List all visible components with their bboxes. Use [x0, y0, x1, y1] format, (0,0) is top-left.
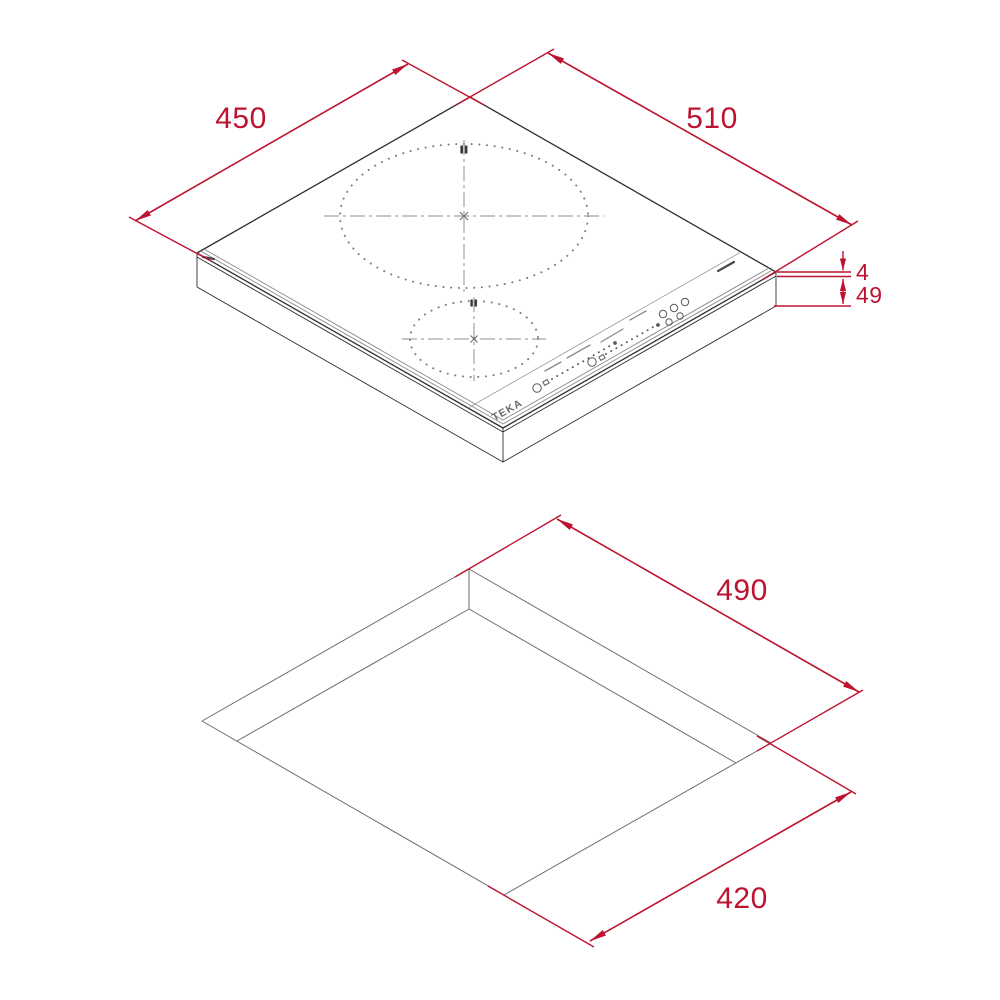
control-strip-line [468, 252, 741, 408]
extension-line [757, 736, 856, 794]
extension-line [455, 515, 561, 577]
dimension-label-490: 490 [716, 574, 768, 607]
zone-key-icon [588, 358, 596, 366]
dimension-510: 510 [456, 49, 858, 280]
hob-body-sides [197, 253, 776, 462]
extension-line [488, 886, 594, 947]
extension-line [762, 221, 858, 280]
panel-legend-marks [545, 311, 646, 371]
dimension-line [135, 64, 408, 221]
dimension-thickness: 4 49 [774, 251, 883, 308]
dimension-line [557, 519, 859, 692]
hob-view: TEKA [197, 97, 776, 462]
extension-line [456, 49, 554, 105]
dimension-line [548, 53, 852, 225]
hob-glass-top-face [197, 97, 776, 428]
cutout-lower-edge-left [237, 609, 469, 741]
power-key-icon [533, 384, 541, 392]
dimension-450: 450 [129, 60, 484, 261]
dimension-line [590, 792, 851, 941]
dimension-490: 490 [455, 515, 863, 751]
installation-diagram: TEKA 450 510 4 49 490 [0, 0, 1000, 1000]
extension-line [402, 60, 484, 105]
slider-end-dot [656, 323, 660, 327]
touch-control-panel [533, 298, 689, 392]
dimension-label-510: 510 [686, 102, 738, 135]
dimension-label-49: 49 [856, 282, 883, 308]
cooking-zone-large [324, 140, 604, 292]
extension-line [757, 690, 863, 751]
diagram-canvas: TEKA 450 510 4 49 490 [0, 0, 1000, 1000]
cutout-lower-edge-right [469, 609, 736, 763]
dimension-420: 420 [488, 736, 856, 947]
cutout-view [202, 569, 771, 895]
function-key-cluster [659, 298, 688, 325]
dimension-label-420: 420 [716, 882, 768, 915]
zone-select-icon [543, 380, 549, 386]
dimension-label-450: 450 [215, 102, 267, 135]
cooking-zone-small [402, 297, 546, 381]
extension-line [129, 217, 211, 261]
zone-select-icon [599, 355, 605, 361]
cutout-top-opening [202, 569, 771, 895]
slider-end-dot [613, 341, 617, 345]
